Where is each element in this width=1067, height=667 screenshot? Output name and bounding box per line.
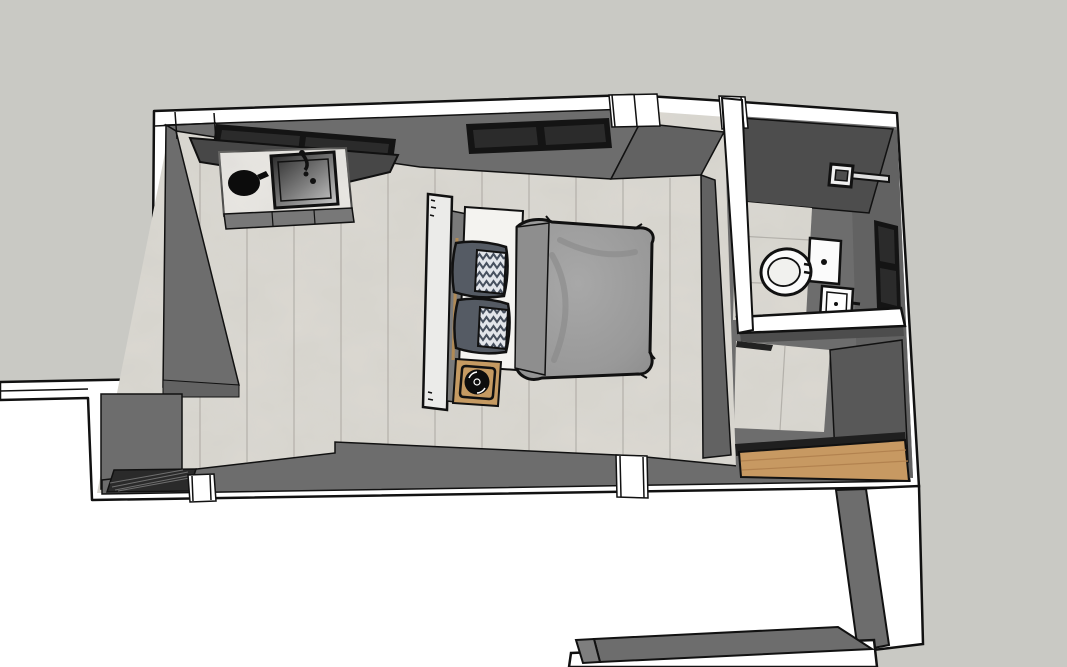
closet — [734, 340, 909, 481]
bathroom-north-dark-face — [727, 117, 893, 213]
pillow-chevron-north — [475, 250, 506, 294]
pillow-chevron-south — [478, 307, 508, 349]
floor-vent-grate — [107, 469, 196, 492]
table-lamp — [465, 370, 490, 395]
nightstand — [453, 359, 501, 406]
kitchen-sink — [271, 150, 338, 208]
model-scene — [0, 0, 1067, 667]
window-center — [466, 118, 612, 154]
bathroom-window — [874, 220, 901, 314]
flush-button — [821, 259, 827, 265]
3d-viewport-canvas[interactable] — [0, 0, 1067, 667]
duvet-fold-flap — [515, 223, 549, 375]
